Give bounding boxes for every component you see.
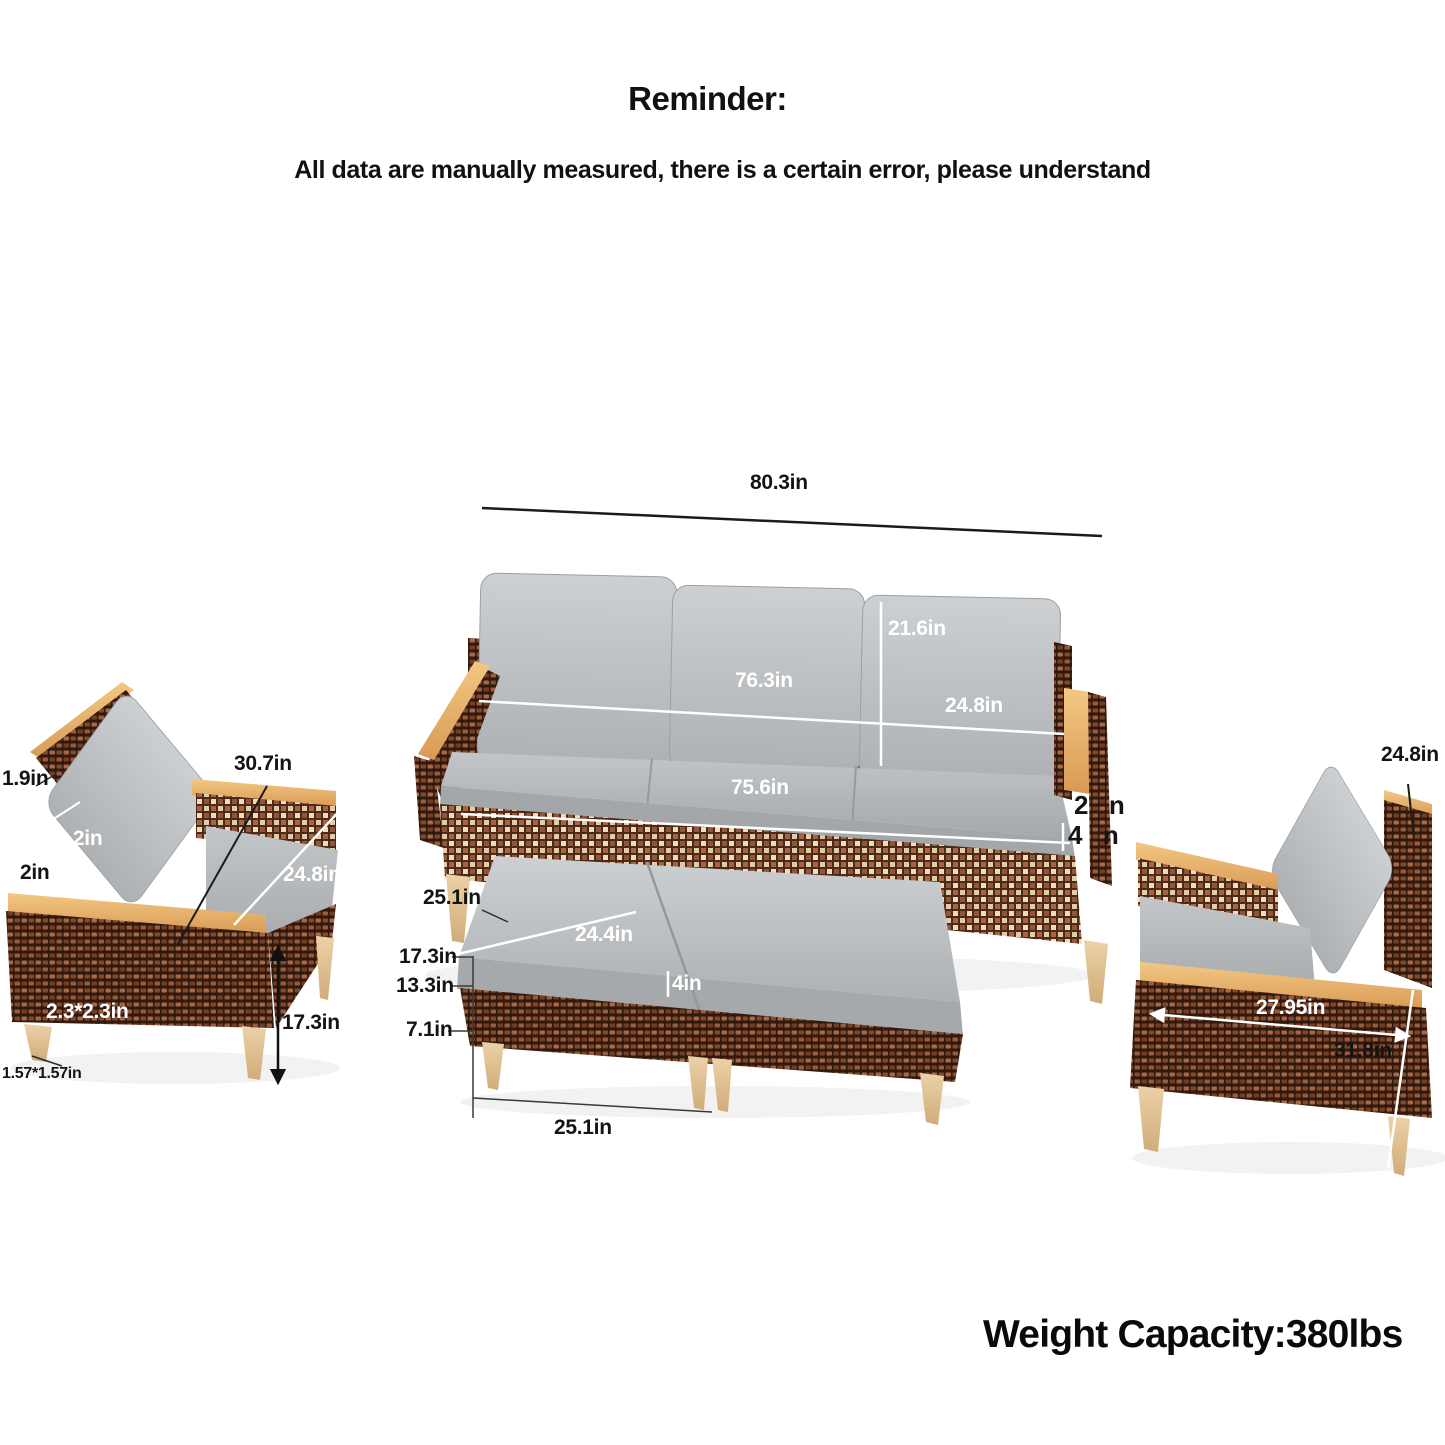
furniture-illustration (0, 0, 1445, 1445)
left-chair-leg (316, 936, 334, 1000)
ottoman-leg (920, 1073, 944, 1125)
dim-right-chair-height: 31.8in (1334, 1040, 1392, 1062)
sofa-overall-width-line (482, 508, 1102, 536)
dim-left-chair-cushion-thickness: 3.2in (56, 828, 102, 850)
left-chair-back-pillow (43, 689, 215, 909)
page-subtitle: All data are manually measured, there is… (0, 156, 1445, 185)
dim-left-chair-width: 30.7in (234, 753, 292, 775)
dim-ottoman-base-height: 13.3in (396, 975, 454, 997)
dim-ottoman-leg-height: 7.1in (406, 1019, 452, 1041)
dim-left-chair-back-frame: 1.9in (2, 768, 48, 790)
dim-left-chair-leg-top: 2.3*2.3in (46, 1001, 129, 1023)
dim-sofa-cropped-bottom: 4 n (1068, 822, 1119, 849)
ottoman-leg (482, 1042, 504, 1090)
dim-ottoman-cushion-width: 24.4in (575, 924, 633, 946)
left-chair-leg (24, 1024, 52, 1062)
sofa-back-cushion-left (477, 573, 677, 767)
dim-sofa-back-cushion-height: 21.6in (888, 618, 946, 640)
dim-left-chair-arm: 2in (20, 862, 49, 884)
dim-ottoman-top-depth: 25.1in (423, 887, 481, 909)
dim-ottoman-bottom-width: 25.1in (554, 1117, 612, 1139)
dim-sofa-back-width: 76.3in (735, 670, 793, 692)
dim-sofa-overall-width: 80.3in (750, 472, 808, 494)
right-chair-leg (1138, 1086, 1164, 1152)
product-dimension-diagram: Reminder: All data are manually measured… (0, 0, 1445, 1445)
dim-left-chair-seat-depth: 24.8in (283, 864, 341, 886)
sofa-right-side-wicker (1088, 692, 1112, 886)
right-chair-back-wicker (1384, 800, 1432, 988)
right-armchair (1130, 760, 1445, 1176)
sofa-right-armrest-wood (1064, 688, 1090, 794)
dim-sofa-seat-width: 75.6in (731, 777, 789, 799)
page-title: Reminder: (0, 80, 1415, 118)
dim-sofa-cropped-top: 2 n (1074, 792, 1125, 819)
dim-right-chair-front-width: 27.95in (1256, 997, 1325, 1019)
dim-ottoman-overall-height: 17.3in (399, 946, 457, 968)
weight-capacity-note: Weight Capacity:380lbs (983, 1313, 1402, 1357)
sofa-leg (1084, 940, 1108, 1004)
dim-left-chair-leg-bottom: 1.57*1.57in (2, 1066, 81, 1083)
dim-ottoman-cushion-thickness: 4in (672, 973, 701, 995)
dim-left-chair-leg-height: 17.3in (282, 1012, 340, 1034)
dim-sofa-back-cushion-width: 24.8in (945, 695, 1003, 717)
ottoman-set (457, 856, 970, 1125)
dim-right-chair-back-width: 24.8in (1381, 744, 1439, 766)
